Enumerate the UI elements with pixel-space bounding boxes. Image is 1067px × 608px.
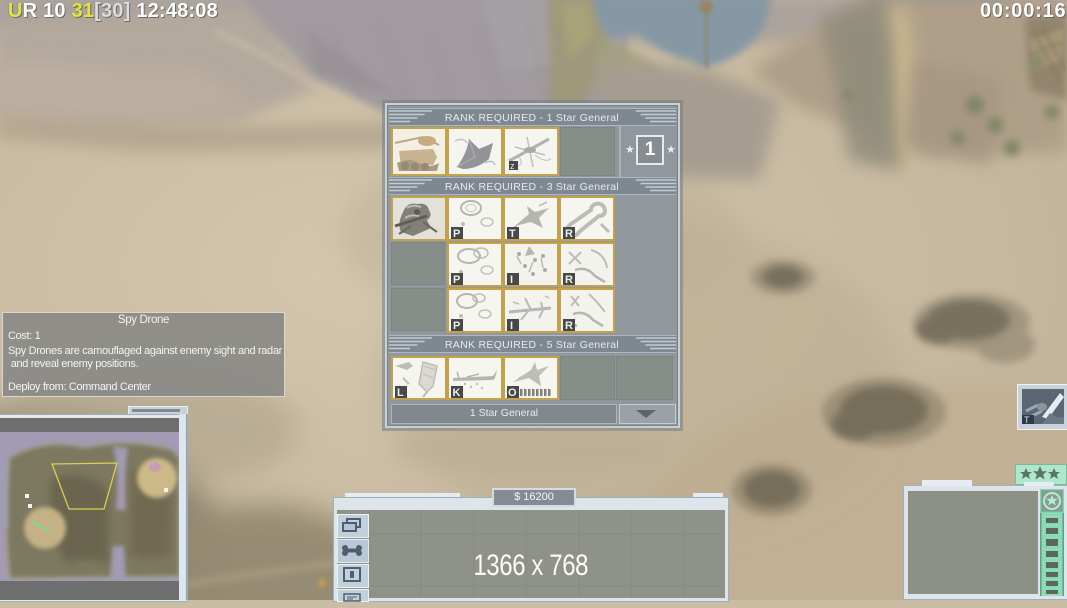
svg-text:P: P — [453, 320, 460, 331]
svg-text:z: z — [510, 161, 515, 171]
svg-text:RANK REQUIRED - 5 Star General: RANK REQUIRED - 5 Star General — [445, 339, 619, 351]
svg-text:R: R — [565, 274, 573, 285]
svg-text:R: R — [565, 320, 573, 331]
svg-text:L: L — [397, 387, 404, 398]
svg-text:P: P — [453, 274, 460, 285]
svg-text:R: R — [565, 228, 573, 239]
svg-text:O: O — [508, 387, 517, 398]
svg-text:P: P — [453, 228, 460, 239]
svg-text:T: T — [1024, 415, 1030, 424]
svg-text:K: K — [453, 387, 461, 398]
svg-text:RANK REQUIRED - 1 Star General: RANK REQUIRED - 1 Star General — [445, 112, 619, 124]
svg-text:I: I — [510, 274, 513, 285]
svg-text:T: T — [509, 228, 516, 239]
svg-text:I: I — [510, 320, 513, 331]
svg-text:RANK REQUIRED - 3 Star General: RANK REQUIRED - 3 Star General — [445, 181, 619, 193]
